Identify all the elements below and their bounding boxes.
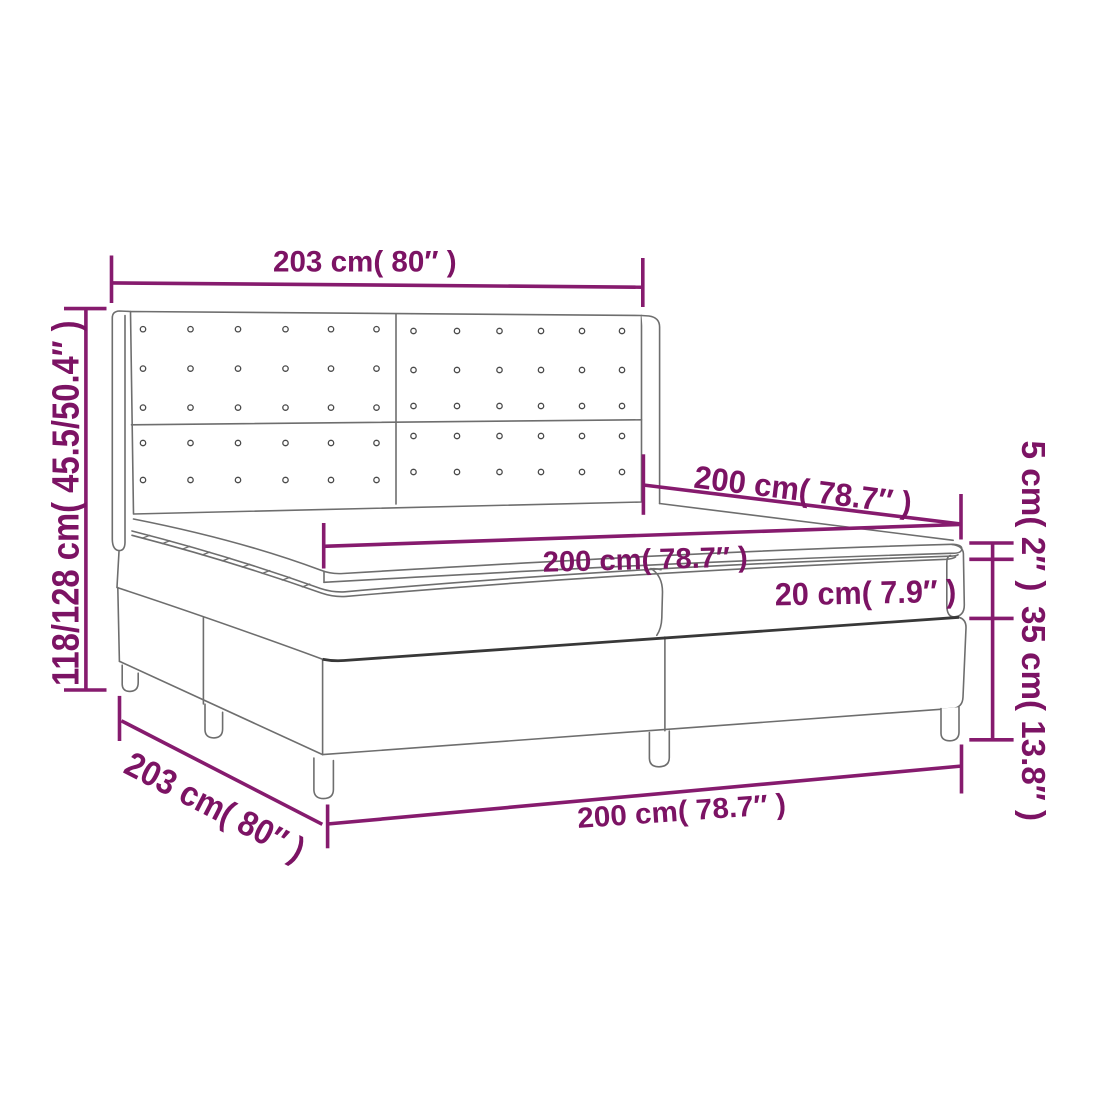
svg-text:5 cm( 2″ ): 5 cm( 2″ ): [1014, 441, 1051, 592]
svg-text:118/128 cm( 45.5/50.4″ ): 118/128 cm( 45.5/50.4″ ): [46, 321, 88, 687]
svg-text:203 cm( 80″ ): 203 cm( 80″ ): [273, 246, 457, 279]
svg-text:200 cm( 78.7″ ): 200 cm( 78.7″ ): [542, 541, 748, 578]
svg-text:20 cm( 7.9″ ): 20 cm( 7.9″ ): [774, 573, 956, 612]
svg-text:35 cm( 13.8″ ): 35 cm( 13.8″ ): [1014, 606, 1051, 821]
